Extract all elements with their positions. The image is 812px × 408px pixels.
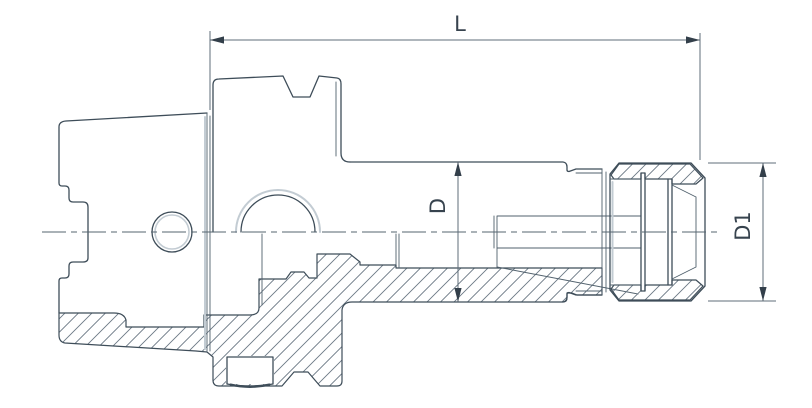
dimension-overall-length: L	[210, 12, 700, 160]
section-lower-half	[59, 234, 638, 387]
body-diameter-label: D	[426, 198, 450, 214]
nut-diameter-arrow-top	[759, 163, 766, 177]
length-arrow-left	[210, 36, 224, 43]
nut-diameter-arrow-bottom	[759, 287, 766, 301]
nut-diameter-label: D1	[731, 211, 755, 241]
flange-outline	[213, 76, 350, 232]
length-arrow-right	[686, 36, 700, 43]
length-label: L	[454, 12, 466, 36]
shank-outline	[59, 113, 207, 232]
technical-drawing-canvas: L D D1	[0, 0, 812, 408]
body-diameter-arrow-top	[454, 162, 461, 176]
internal-bore-silhouette	[494, 216, 641, 267]
flange-gripper-arc	[241, 195, 315, 232]
dimension-nut-diameter: D1	[708, 163, 776, 301]
set-screw-pocket-mask	[226, 356, 274, 384]
body-outline	[350, 162, 602, 172]
shank-grip-notch-lower	[59, 232, 88, 313]
flange-arc-shading	[236, 190, 320, 232]
collet-chuck-drawing: L D D1	[0, 0, 812, 408]
upper-half-view	[59, 76, 641, 351]
length-extension-lines	[210, 31, 700, 160]
section-body-hatch	[59, 254, 602, 386]
nut-section-band-top	[611, 164, 703, 184]
nut-section-band-bottom	[611, 280, 703, 300]
